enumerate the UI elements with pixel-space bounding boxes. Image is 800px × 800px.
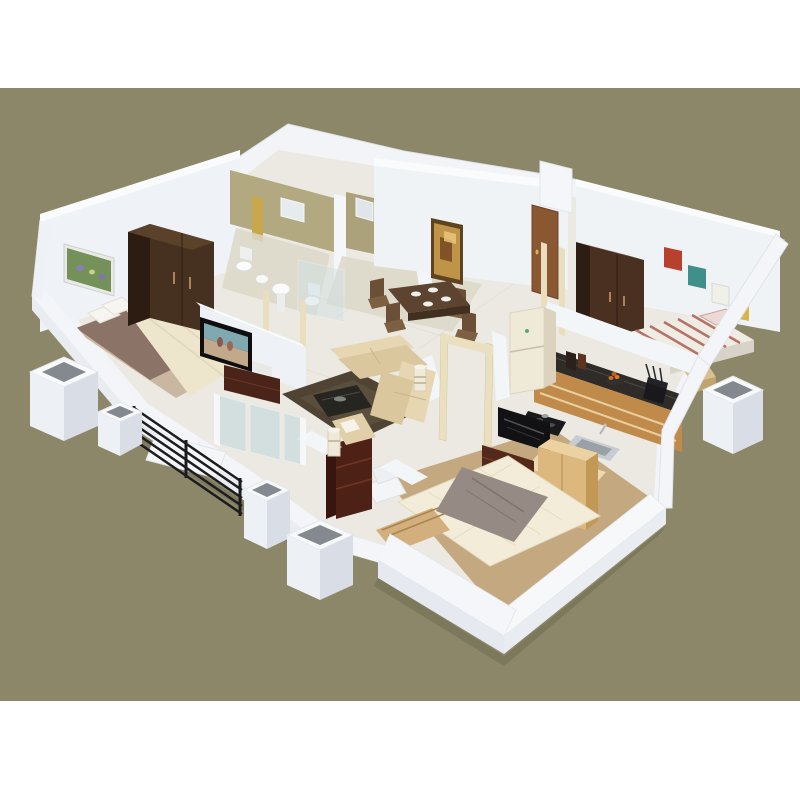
floor-lamp-body <box>414 367 426 391</box>
bedroom2-poster-teal <box>688 265 706 289</box>
fridge-sticker <box>525 329 529 333</box>
screenshot-root <box>0 0 800 800</box>
dinner-plate <box>423 302 433 307</box>
dinner-plate <box>441 297 451 302</box>
balcony-glass-panel <box>250 404 280 460</box>
bedroom2-poster-red <box>664 247 682 271</box>
counter-bottle <box>566 351 576 371</box>
balcony-glass-panel <box>218 395 246 452</box>
entry-pillar <box>540 161 572 213</box>
glass-frame-post <box>300 417 306 466</box>
washbasin2-pedestal <box>277 293 285 312</box>
fridge-side <box>544 307 556 388</box>
isometric-floor-plan-render <box>0 0 800 800</box>
fruit <box>612 372 617 376</box>
wardrobe1-side <box>128 224 150 326</box>
coffee-table-tray <box>334 397 346 402</box>
tv-screen-figure <box>217 337 223 347</box>
washbasin1 <box>256 275 268 283</box>
balcony-glass-panel <box>284 413 302 465</box>
counter-bottle <box>578 353 586 370</box>
floor-lamp-top <box>414 365 426 370</box>
entry-door-handle <box>536 250 539 255</box>
tv-screen-figure <box>227 341 233 351</box>
bedroom2-poster-white <box>712 283 729 306</box>
toilet1-bowl <box>236 261 252 271</box>
picture-flower <box>89 270 95 275</box>
dinner-plate <box>411 292 421 297</box>
picture-flower <box>99 274 106 280</box>
fruit <box>609 376 614 380</box>
dinner-plate <box>428 288 438 293</box>
floor-lamp-body <box>328 430 340 456</box>
floor-lamp-top <box>328 428 340 433</box>
glass-frame-post <box>214 393 220 446</box>
sink-faucet-head <box>604 424 607 427</box>
picture-flower <box>76 265 84 271</box>
dresser-front <box>336 433 372 519</box>
hob-pot <box>542 414 549 418</box>
